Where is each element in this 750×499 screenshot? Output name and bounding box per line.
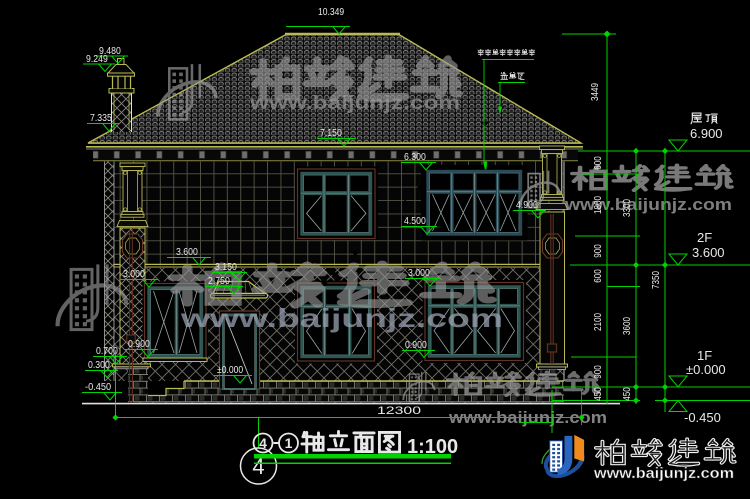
- svg-text:2F: 2F: [697, 230, 712, 245]
- svg-text:3300: 3300: [622, 199, 633, 217]
- svg-text:900: 900: [593, 244, 604, 258]
- svg-text:3.150: 3.150: [215, 262, 237, 273]
- svg-text:www.baijunjz.com: www.baijunjz.com: [180, 303, 503, 333]
- svg-text:600: 600: [593, 269, 604, 283]
- svg-text:600: 600: [593, 156, 604, 170]
- svg-text:7350: 7350: [651, 271, 662, 289]
- svg-text:10.349: 10.349: [318, 7, 344, 18]
- svg-text:0.900: 0.900: [405, 340, 427, 351]
- svg-text:450: 450: [622, 387, 633, 401]
- svg-text:7.335: 7.335: [90, 113, 112, 124]
- svg-text:3.000: 3.000: [408, 268, 430, 279]
- svg-text:0.900: 0.900: [128, 339, 150, 350]
- svg-text:4.500: 4.500: [404, 216, 426, 227]
- svg-text:1800: 1800: [593, 196, 604, 214]
- svg-text:3.600: 3.600: [176, 247, 198, 258]
- svg-text:0.300: 0.300: [88, 360, 110, 371]
- svg-text:2.750: 2.750: [208, 276, 230, 287]
- svg-text:3.600: 3.600: [692, 245, 725, 260]
- svg-text:2100: 2100: [593, 313, 604, 331]
- svg-text:1: 1: [285, 435, 293, 451]
- svg-text:1F: 1F: [697, 348, 712, 363]
- svg-text:±0.000: ±0.000: [217, 365, 243, 376]
- svg-text:-0.450: -0.450: [85, 382, 111, 393]
- svg-text:3600: 3600: [622, 317, 633, 335]
- svg-text:-0.450: -0.450: [684, 410, 721, 425]
- svg-text:±0.000: ±0.000: [686, 362, 726, 377]
- svg-text:4: 4: [259, 435, 267, 451]
- svg-text:4.900: 4.900: [516, 200, 538, 211]
- svg-text:www.baijunjz.com: www.baijunjz.com: [564, 195, 732, 214]
- svg-text:6.300: 6.300: [404, 152, 426, 163]
- svg-text:www.baijunjz.com: www.baijunjz.com: [593, 465, 734, 482]
- svg-text:900: 900: [593, 365, 604, 379]
- svg-text:7.150: 7.150: [320, 128, 342, 139]
- svg-text:6.900: 6.900: [690, 126, 723, 141]
- svg-text:450: 450: [593, 387, 604, 401]
- svg-text:3449: 3449: [590, 83, 601, 101]
- svg-text:9.249: 9.249: [86, 54, 108, 65]
- svg-text:3.000: 3.000: [123, 269, 145, 280]
- svg-text:www.baijunjz.com: www.baijunjz.com: [249, 93, 460, 114]
- svg-text:0.700: 0.700: [96, 346, 118, 357]
- svg-text:12300: 12300: [377, 405, 421, 417]
